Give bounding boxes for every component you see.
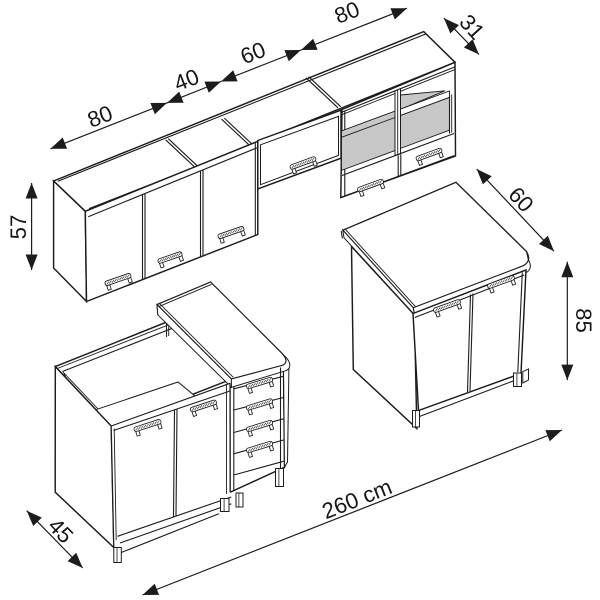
svg-text:85: 85 (571, 308, 596, 333)
svg-text:57: 57 (6, 215, 31, 240)
